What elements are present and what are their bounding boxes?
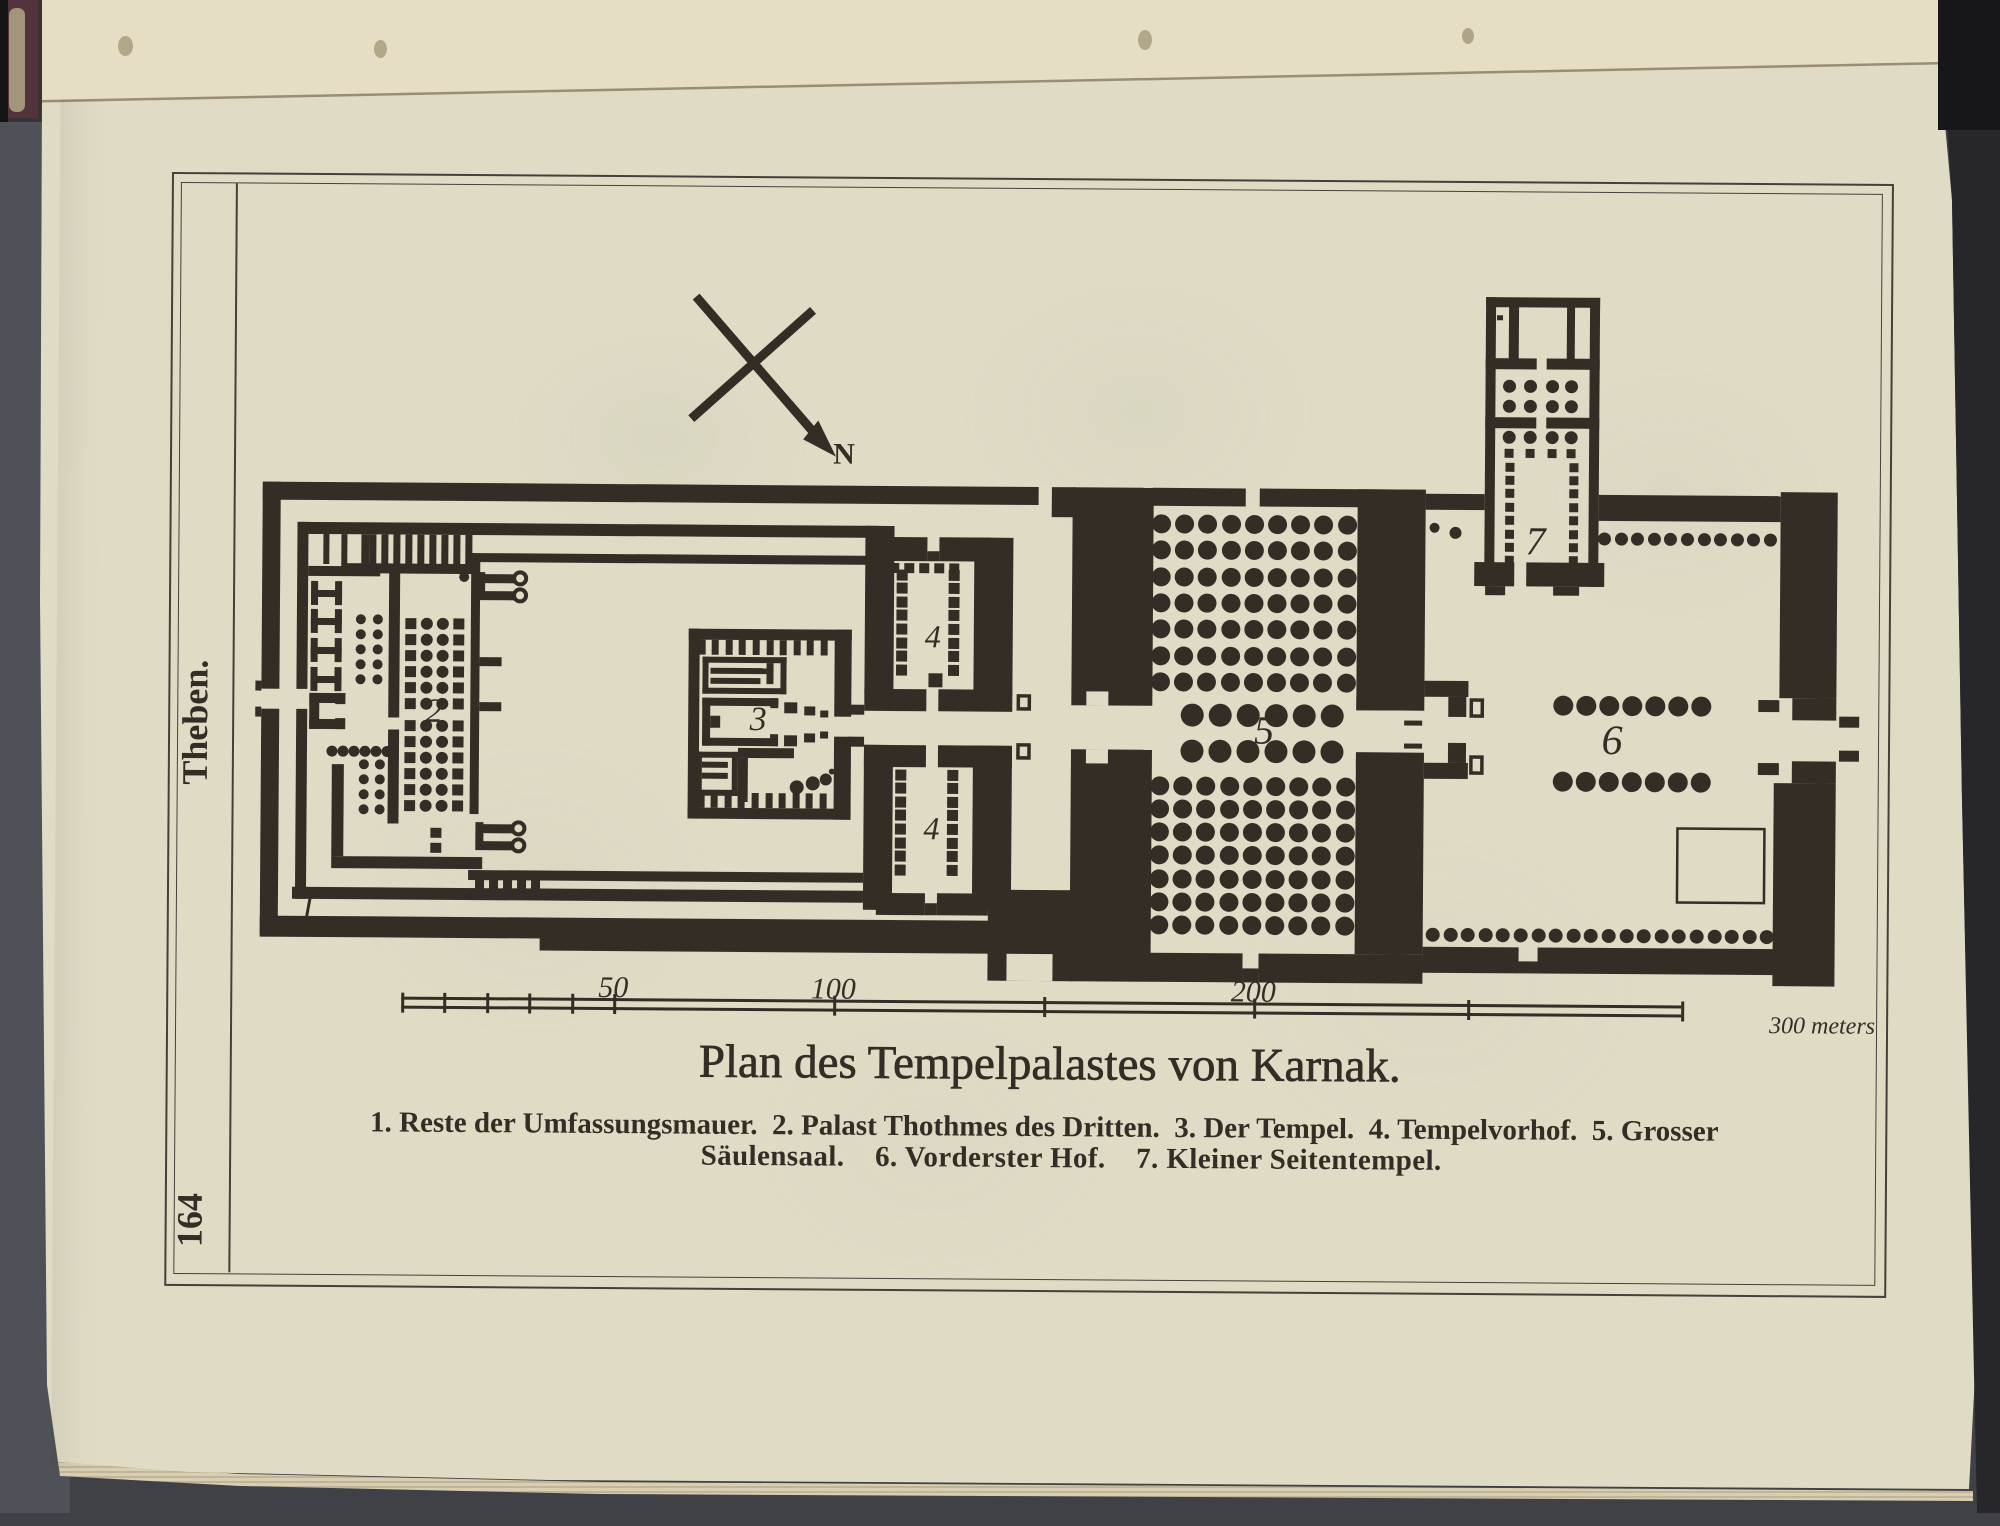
svg-text:1: 1: [299, 886, 317, 926]
svg-text:6: 6: [1601, 718, 1622, 764]
svg-text:100: 100: [811, 972, 856, 1005]
svg-text:50: 50: [598, 971, 628, 1004]
svg-text:2: 2: [426, 693, 443, 730]
svg-text:3: 3: [749, 701, 767, 738]
svg-text:200: 200: [1231, 975, 1276, 1008]
svg-text:4: 4: [923, 810, 939, 846]
svg-text:5: 5: [1254, 708, 1274, 753]
svg-text:N: N: [833, 438, 855, 471]
svg-text:4: 4: [925, 618, 941, 654]
svg-text:7: 7: [1525, 518, 1547, 563]
svg-text:300 meters: 300 meters: [1768, 1013, 1875, 1040]
